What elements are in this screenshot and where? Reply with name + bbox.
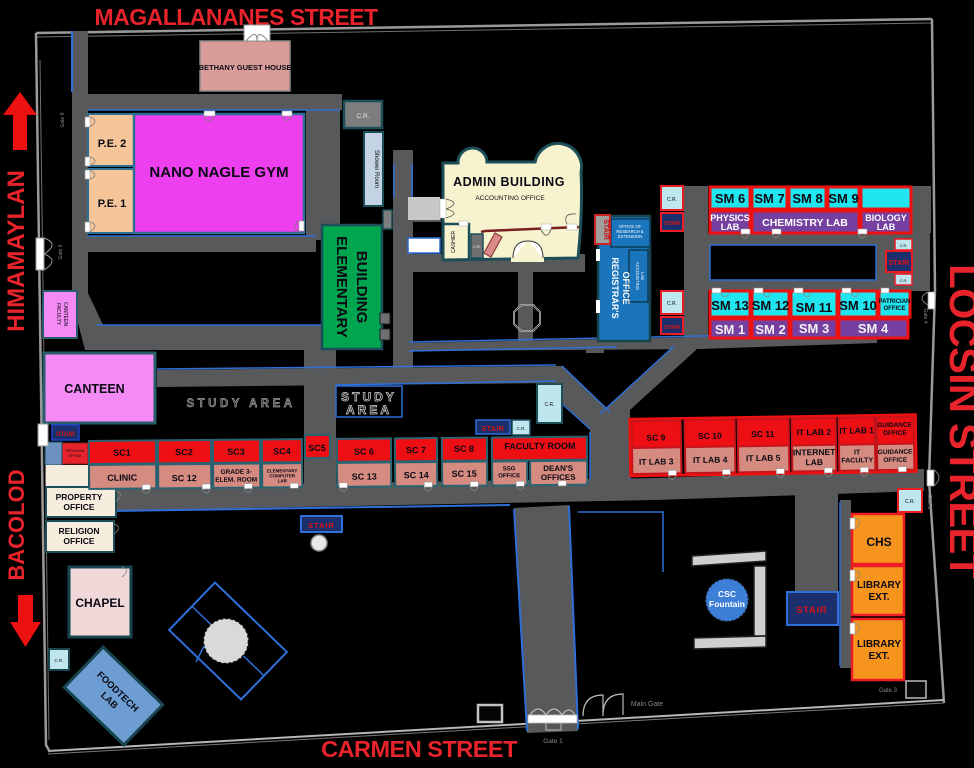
svg-text:GRADE 3-: GRADE 3- bbox=[221, 469, 252, 476]
svg-text:REGISTRAR'S: REGISTRAR'S bbox=[610, 257, 620, 318]
svg-text:HIMAMAYLAN: HIMAMAYLAN bbox=[3, 170, 30, 332]
svg-text:ELEMENTARY: ELEMENTARY bbox=[333, 236, 350, 338]
svg-text:STAIR: STAIR bbox=[56, 431, 75, 438]
svg-text:FACULTY: FACULTY bbox=[841, 457, 873, 465]
svg-text:C.R.: C.R. bbox=[900, 244, 908, 248]
svg-text:SC 6: SC 6 bbox=[354, 447, 374, 457]
svg-text:LAB: LAB bbox=[721, 222, 740, 232]
svg-text:P.E. 2: P.E. 2 bbox=[98, 138, 127, 150]
svg-text:ACCOUNTING: ACCOUNTING bbox=[635, 262, 640, 290]
svg-text:EXTENSION: EXTENSION bbox=[618, 234, 642, 239]
svg-text:OFFICE: OFFICE bbox=[63, 502, 94, 512]
svg-text:STUDY AREA: STUDY AREA bbox=[186, 398, 295, 410]
svg-text:GUIDANCE: GUIDANCE bbox=[878, 449, 913, 457]
svg-text:Gate 4: Gate 4 bbox=[922, 308, 928, 323]
svg-text:SC 12: SC 12 bbox=[172, 473, 197, 483]
svg-text:SM 2: SM 2 bbox=[755, 322, 785, 337]
svg-text:EXT.: EXT. bbox=[868, 592, 889, 603]
svg-text:SSG: SSG bbox=[503, 466, 516, 472]
svg-text:C.R.: C.R. bbox=[905, 499, 915, 505]
svg-text:C.R.: C.R. bbox=[545, 402, 555, 408]
svg-text:C.R.: C.R. bbox=[667, 197, 677, 203]
svg-text:Shower Room: Shower Room bbox=[373, 150, 379, 188]
svg-text:Gate 2: Gate 2 bbox=[926, 494, 932, 509]
svg-text:DEAN'S: DEAN'S bbox=[543, 464, 574, 473]
svg-text:SC 10: SC 10 bbox=[698, 431, 722, 441]
svg-text:NANO NAGLE GYM: NANO NAGLE GYM bbox=[149, 164, 288, 181]
svg-text:SM 4: SM 4 bbox=[858, 321, 889, 336]
svg-text:OFFICE: OFFICE bbox=[63, 536, 94, 546]
svg-text:PATRICIAN: PATRICIAN bbox=[66, 449, 85, 453]
svg-text:ADMIN BUILDING: ADMIN BUILDING bbox=[453, 175, 565, 189]
svg-text:OFFICE: OFFICE bbox=[68, 454, 82, 458]
svg-text:CARMEN STREET: CARMEN STREET bbox=[321, 736, 518, 762]
svg-text:SC 11: SC 11 bbox=[751, 429, 775, 439]
svg-text:SC3: SC3 bbox=[227, 447, 245, 457]
svg-text:OFFICE: OFFICE bbox=[621, 272, 631, 305]
svg-text:IT LAB 1: IT LAB 1 bbox=[839, 425, 874, 436]
svg-text:LAB: LAB bbox=[640, 272, 645, 280]
svg-text:IT LAB 3: IT LAB 3 bbox=[639, 456, 674, 467]
svg-text:BETHANY GUEST HOUSE: BETHANY GUEST HOUSE bbox=[199, 63, 292, 72]
svg-text:SC1: SC1 bbox=[113, 448, 131, 458]
svg-text:LAB: LAB bbox=[278, 478, 288, 483]
svg-text:SC 8: SC 8 bbox=[454, 444, 474, 454]
svg-text:IT LAB 4: IT LAB 4 bbox=[693, 454, 728, 465]
svg-text:SC4: SC4 bbox=[273, 446, 291, 456]
svg-text:ELEM. ROOM: ELEM. ROOM bbox=[215, 477, 257, 484]
svg-text:SC 7: SC 7 bbox=[406, 445, 426, 455]
svg-text:C.R.: C.R. bbox=[517, 426, 526, 431]
svg-text:CSC: CSC bbox=[718, 589, 736, 599]
svg-text:INTERNET: INTERNET bbox=[793, 447, 836, 458]
svg-text:OFFICE: OFFICE bbox=[883, 457, 908, 464]
svg-text:LIBRARY: LIBRARY bbox=[857, 580, 901, 591]
svg-text:Gate 1: Gate 1 bbox=[543, 738, 563, 745]
svg-text:OFFICE: OFFICE bbox=[883, 430, 908, 437]
svg-text:SM 3: SM 3 bbox=[799, 321, 829, 336]
svg-text:Gate 6: Gate 6 bbox=[58, 244, 64, 259]
svg-text:SC 14: SC 14 bbox=[404, 470, 429, 480]
svg-text:SM 13: SM 13 bbox=[711, 298, 749, 313]
svg-text:LAB: LAB bbox=[877, 222, 896, 232]
svg-text:SM 1: SM 1 bbox=[715, 322, 745, 337]
svg-text:OFFICE: OFFICE bbox=[498, 473, 520, 479]
svg-text:STAIR: STAIR bbox=[889, 260, 909, 267]
svg-text:C.R.: C.R. bbox=[55, 658, 64, 663]
svg-text:C.R.: C.R. bbox=[667, 301, 677, 307]
svg-text:STAIR: STAIR bbox=[664, 221, 680, 227]
svg-text:FACULTY ROOM: FACULTY ROOM bbox=[504, 441, 575, 452]
svg-text:MAGALLANANES STREET: MAGALLANANES STREET bbox=[94, 4, 378, 30]
svg-text:CANTEEN: CANTEEN bbox=[62, 302, 68, 326]
svg-text:CHAPEL: CHAPEL bbox=[75, 596, 124, 610]
svg-text:BACOLOD: BACOLOD bbox=[4, 469, 29, 580]
svg-text:EXT.: EXT. bbox=[868, 651, 889, 662]
svg-text:Gate 3: Gate 3 bbox=[879, 688, 898, 694]
svg-text:SC5: SC5 bbox=[308, 443, 326, 453]
svg-text:LAB: LAB bbox=[805, 457, 823, 467]
svg-text:Main Gate: Main Gate bbox=[631, 701, 663, 708]
svg-text:STAIR: STAIR bbox=[796, 605, 827, 615]
svg-text:C.R.: C.R. bbox=[357, 113, 370, 120]
svg-text:SM 9: SM 9 bbox=[828, 191, 858, 206]
svg-text:SC2: SC2 bbox=[175, 447, 193, 457]
svg-text:RELIGION: RELIGION bbox=[58, 526, 99, 536]
svg-text:ACCOUNTING OFFICE: ACCOUNTING OFFICE bbox=[475, 195, 545, 202]
svg-text:STUDY: STUDY bbox=[341, 390, 397, 404]
svg-text:FACULTY: FACULTY bbox=[55, 303, 61, 326]
svg-text:P.E. 1: P.E. 1 bbox=[98, 198, 127, 210]
svg-text:IT LAB 5: IT LAB 5 bbox=[746, 453, 781, 464]
svg-text:Fountain: Fountain bbox=[709, 599, 745, 609]
svg-text:SM 7: SM 7 bbox=[754, 191, 784, 206]
svg-text:STAIR: STAIR bbox=[664, 325, 680, 331]
svg-text:BUILDING: BUILDING bbox=[353, 251, 370, 324]
svg-text:SC 9: SC 9 bbox=[646, 432, 665, 442]
svg-text:AREA: AREA bbox=[346, 403, 392, 417]
svg-text:OFFICE: OFFICE bbox=[884, 306, 906, 312]
svg-text:GUIDANCE: GUIDANCE bbox=[877, 422, 912, 430]
svg-text:CHS: CHS bbox=[866, 535, 891, 549]
svg-text:STAIR: STAIR bbox=[482, 426, 505, 433]
svg-text:PATRICIAN: PATRICIAN bbox=[879, 299, 911, 305]
svg-text:SC 15: SC 15 bbox=[452, 469, 477, 479]
svg-text:SM 12: SM 12 bbox=[752, 298, 790, 313]
svg-text:SM 8: SM 8 bbox=[792, 191, 822, 206]
svg-text:IT LAB 2: IT LAB 2 bbox=[796, 427, 831, 438]
svg-text:LIBRARY: LIBRARY bbox=[857, 639, 901, 650]
svg-text:IT: IT bbox=[854, 449, 861, 456]
svg-text:SM 10: SM 10 bbox=[839, 298, 877, 313]
svg-text:PROPERTY: PROPERTY bbox=[56, 492, 103, 502]
svg-text:CASHIER: CASHIER bbox=[451, 231, 457, 254]
svg-text:CHEMISTRY LAB: CHEMISTRY LAB bbox=[762, 217, 848, 229]
svg-text:CLINIC: CLINIC bbox=[107, 473, 138, 483]
svg-text:STAIR: STAIR bbox=[602, 219, 609, 239]
svg-text:LOCSIN STREET: LOCSIN STREET bbox=[941, 264, 974, 578]
svg-text:SM 11: SM 11 bbox=[796, 300, 833, 315]
svg-text:C.R.: C.R. bbox=[900, 279, 908, 283]
svg-text:CANTEEN: CANTEEN bbox=[64, 382, 124, 396]
svg-text:SC 13: SC 13 bbox=[352, 471, 377, 481]
svg-text:STAIR: STAIR bbox=[308, 521, 335, 530]
svg-text:C.R.: C.R. bbox=[473, 244, 481, 249]
svg-text:SM 6: SM 6 bbox=[715, 191, 745, 206]
svg-text:Gate 8: Gate 8 bbox=[60, 112, 66, 127]
